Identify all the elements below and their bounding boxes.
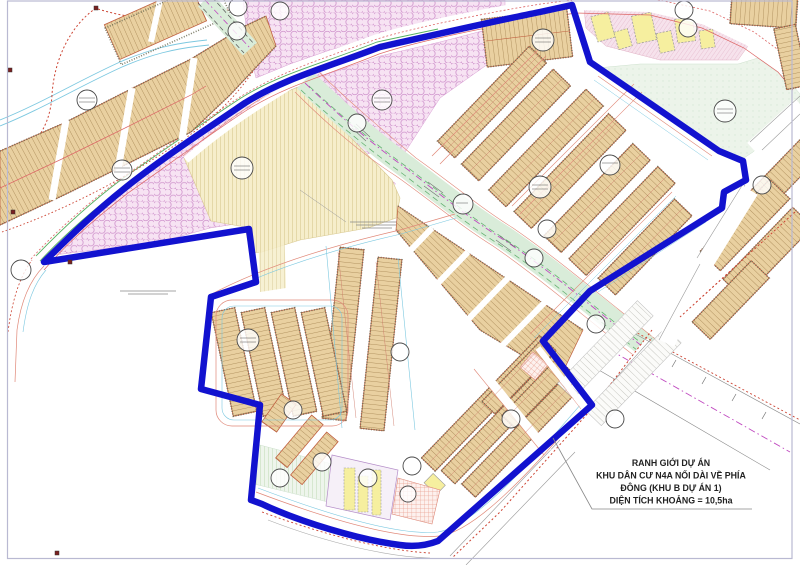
svg-text:KHU DÂN CƯ N4A NỐI DÀI VỀ PHÍA: KHU DÂN CƯ N4A NỐI DÀI VỀ PHÍA	[596, 470, 746, 481]
svg-text:DIỆN TÍCH KHOẢNG = 10,5ha: DIỆN TÍCH KHOẢNG = 10,5ha	[610, 495, 733, 506]
svg-text:RANH GIỚI DỰ ÁN: RANH GIỚI DỰ ÁN	[632, 457, 710, 468]
svg-text:ĐÔNG (KHU B DỰ ÁN 1): ĐÔNG (KHU B DỰ ÁN 1)	[620, 482, 721, 493]
